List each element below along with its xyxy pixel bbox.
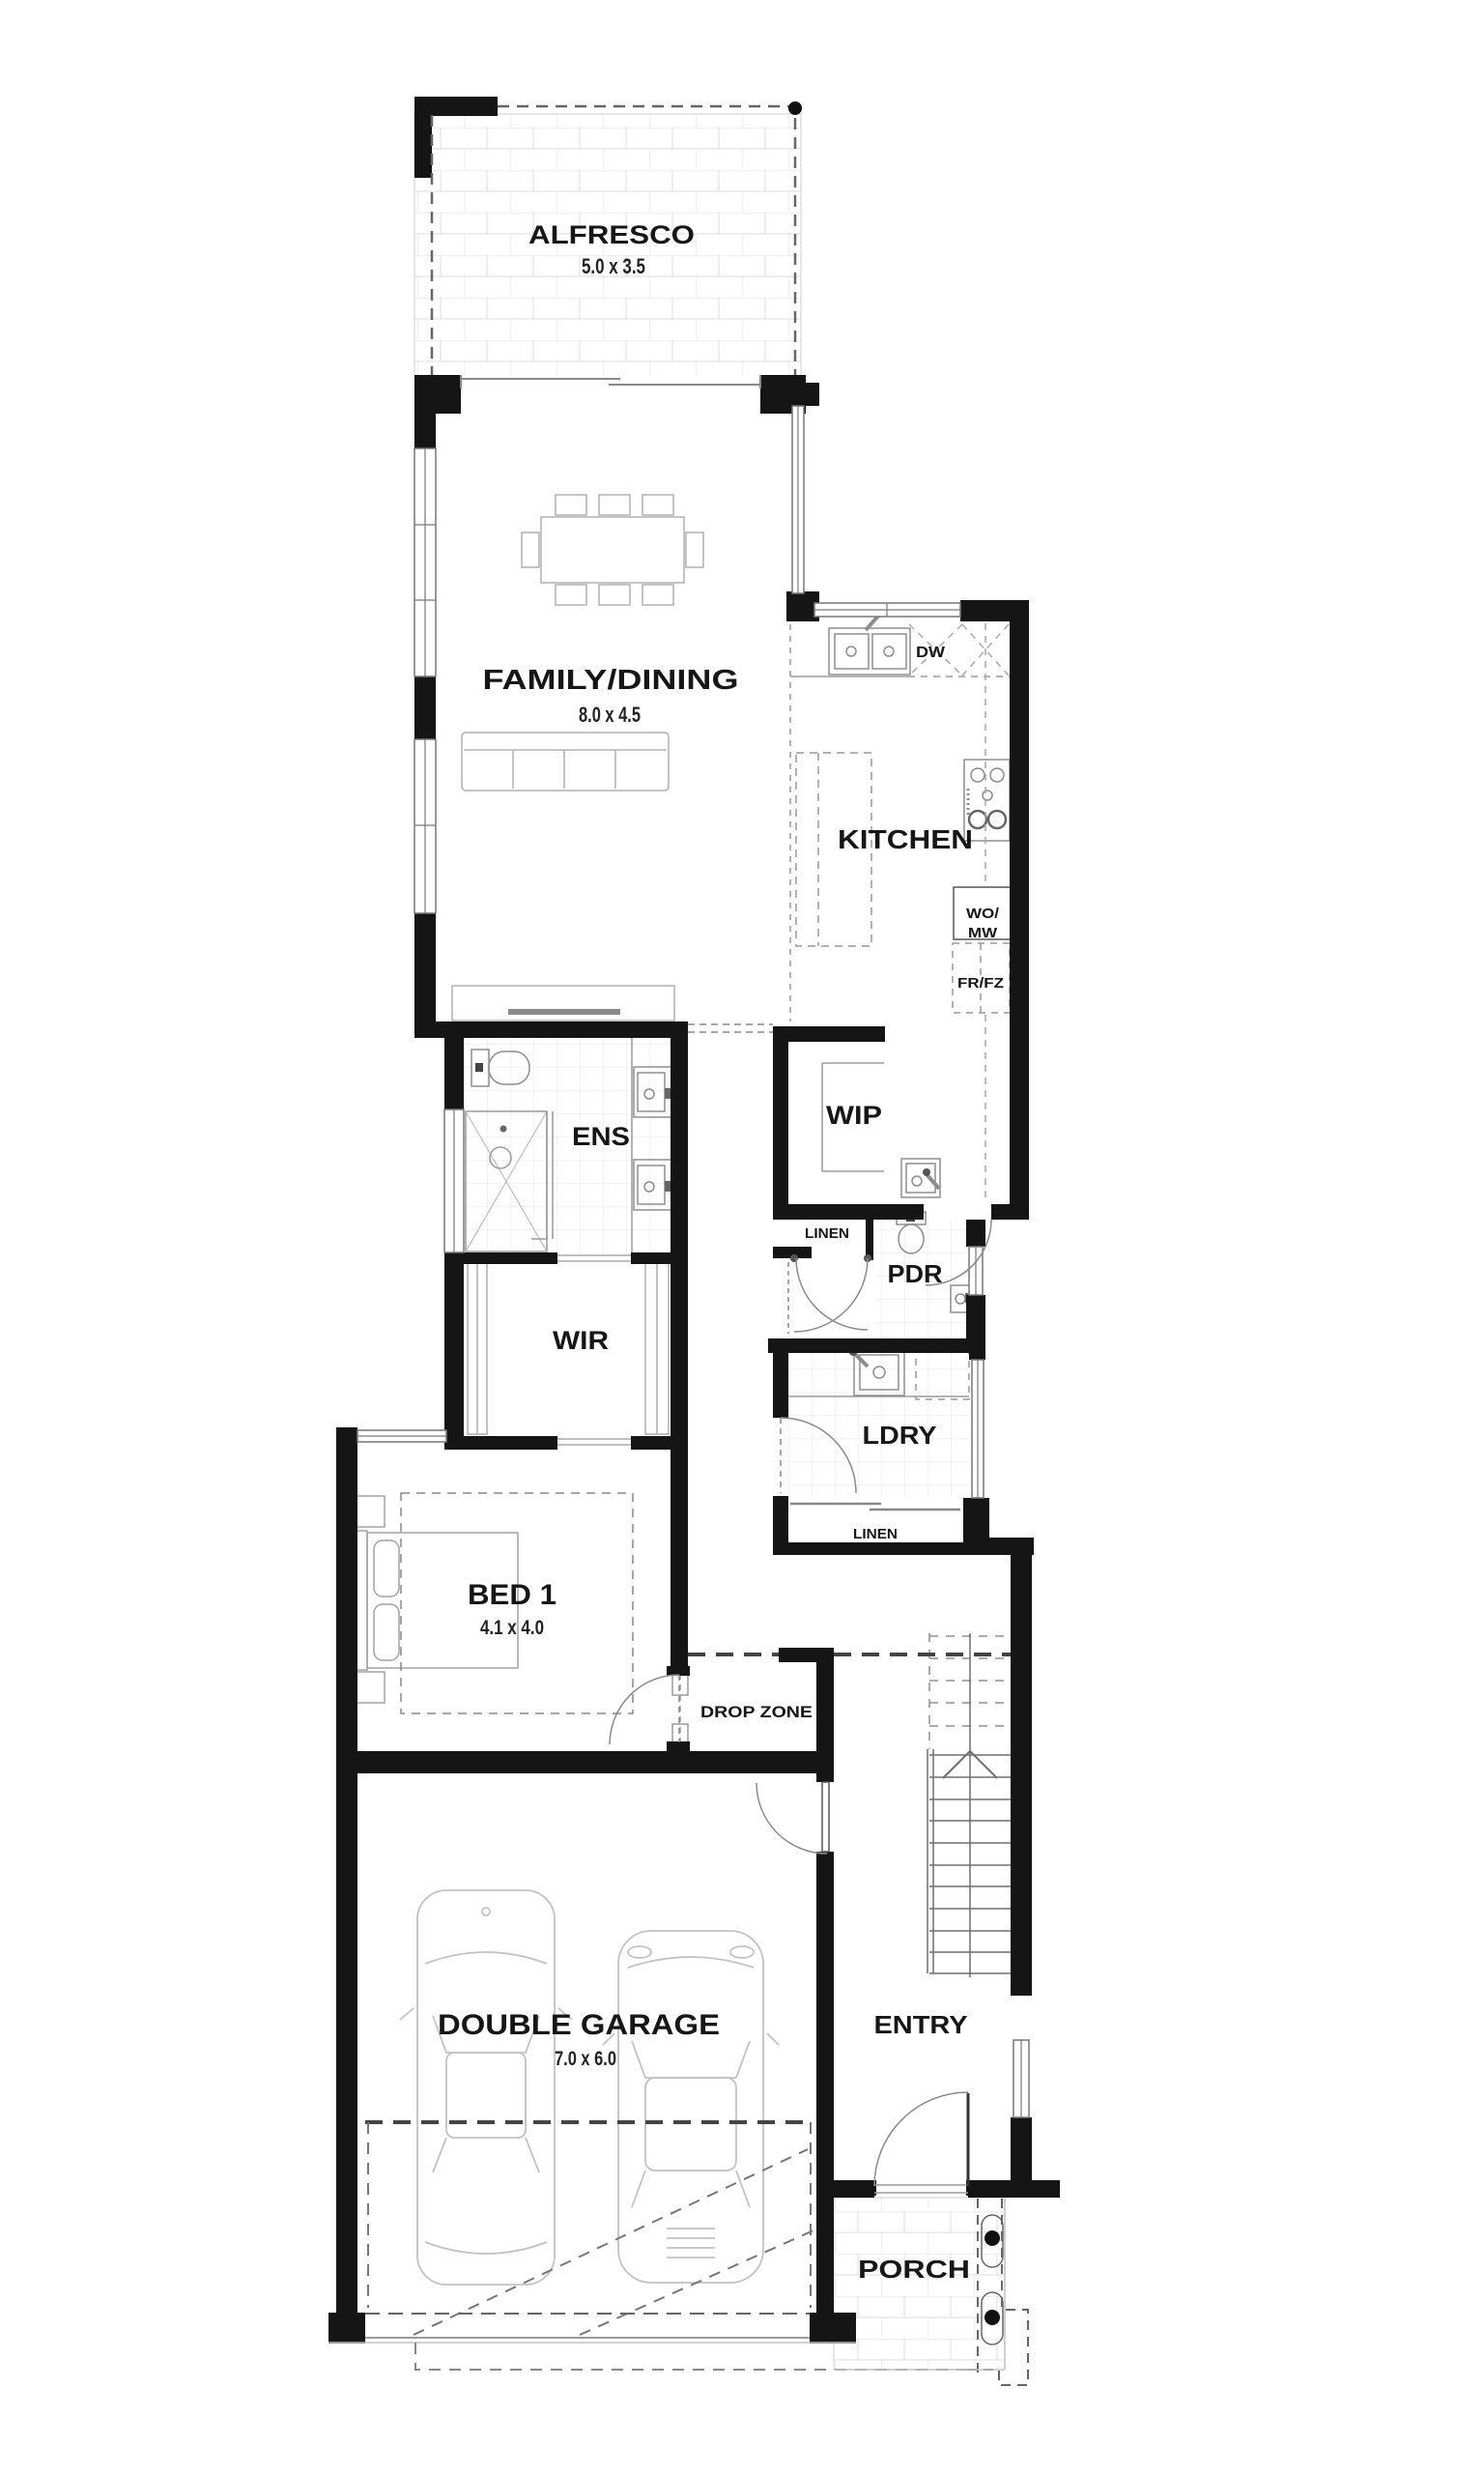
room-label-bed1: BED 1 [468,1579,556,1611]
porch-floor [834,2198,1005,2370]
front-door-sill [874,2185,968,2193]
room-dims-alfresco: 5.0 x 3.5 [582,254,645,278]
sofa [462,733,669,791]
room-label-linen-upper: LINEN [805,1225,849,1242]
alfresco-sliding-door [461,375,760,388]
car-right [603,1931,779,2283]
family-east-window [792,406,804,593]
kitchen-sink [829,608,910,675]
room-label-family-dining: FAMILY/DINING [483,665,739,696]
garage-entry-door [756,1782,829,1854]
room-label-kitchen: KITCHEN [838,824,973,854]
room-label-ldry: LDRY [863,1421,937,1450]
bed1-window [357,1430,446,1442]
room-dims-garage: 7.0 x 6.0 [555,2048,616,2070]
dining-table [522,495,703,605]
appliance-label-mw: MW [968,925,998,941]
car-left [400,1890,572,2285]
floor-plan-page: ALFRESCO 5.0 x 3.5 FAMILY/DINING 8.0 x 4… [0,0,1484,2474]
room-label-entry: ENTRY [874,2010,968,2039]
appliance-label-wo: WO/ [966,906,1000,922]
hall-opening [688,1024,773,1032]
entry-window [1013,2040,1029,2117]
front-door [874,2092,968,2186]
room-label-ens: ENS [572,1122,630,1151]
wip-sink [901,1159,940,1197]
linen1-doors [788,1254,871,1334]
room-label-pdr: PDR [888,1259,943,1288]
room-label-linen-lower: LINEN [853,1526,898,1542]
ens-floor [464,1038,671,1252]
drop-zone-seat [672,1674,688,1745]
family-window-1 [414,448,436,676]
garage-ceiling-line [365,2122,813,2335]
linen2-sliding-door [790,1504,960,1510]
room-label-wir: WIR [553,1326,609,1355]
bed1-door [610,1675,679,1744]
ens-window [444,1109,464,1252]
room-label-wip: WIP [826,1101,882,1130]
floor-plan: ALFRESCO 5.0 x 3.5 FAMILY/DINING 8.0 x 4… [0,0,1484,2474]
appliance-label-frfz: FR/FZ [957,975,1004,992]
staircase [927,1633,1011,1977]
garage-door-line [328,2314,856,2343]
room-label-alfresco: ALFRESCO [528,220,695,249]
appliance-label-dw: DW [916,645,946,661]
pdr-window [969,1247,983,1295]
room-dims-bed1: 4.1 x 4.0 [480,1617,544,1639]
room-label-drop-zone: DROP ZONE [700,1703,813,1721]
room-label-garage: DOUBLE GARAGE [438,2009,720,2041]
roof-point [788,101,802,115]
room-label-porch: PORCH [858,2255,970,2284]
room-dims-family-dining: 8.0 x 4.5 [579,703,641,727]
ldry-window [972,1360,984,1498]
kitchen-window [814,603,960,617]
tv-unit [452,986,674,1021]
family-window-2 [414,739,436,913]
